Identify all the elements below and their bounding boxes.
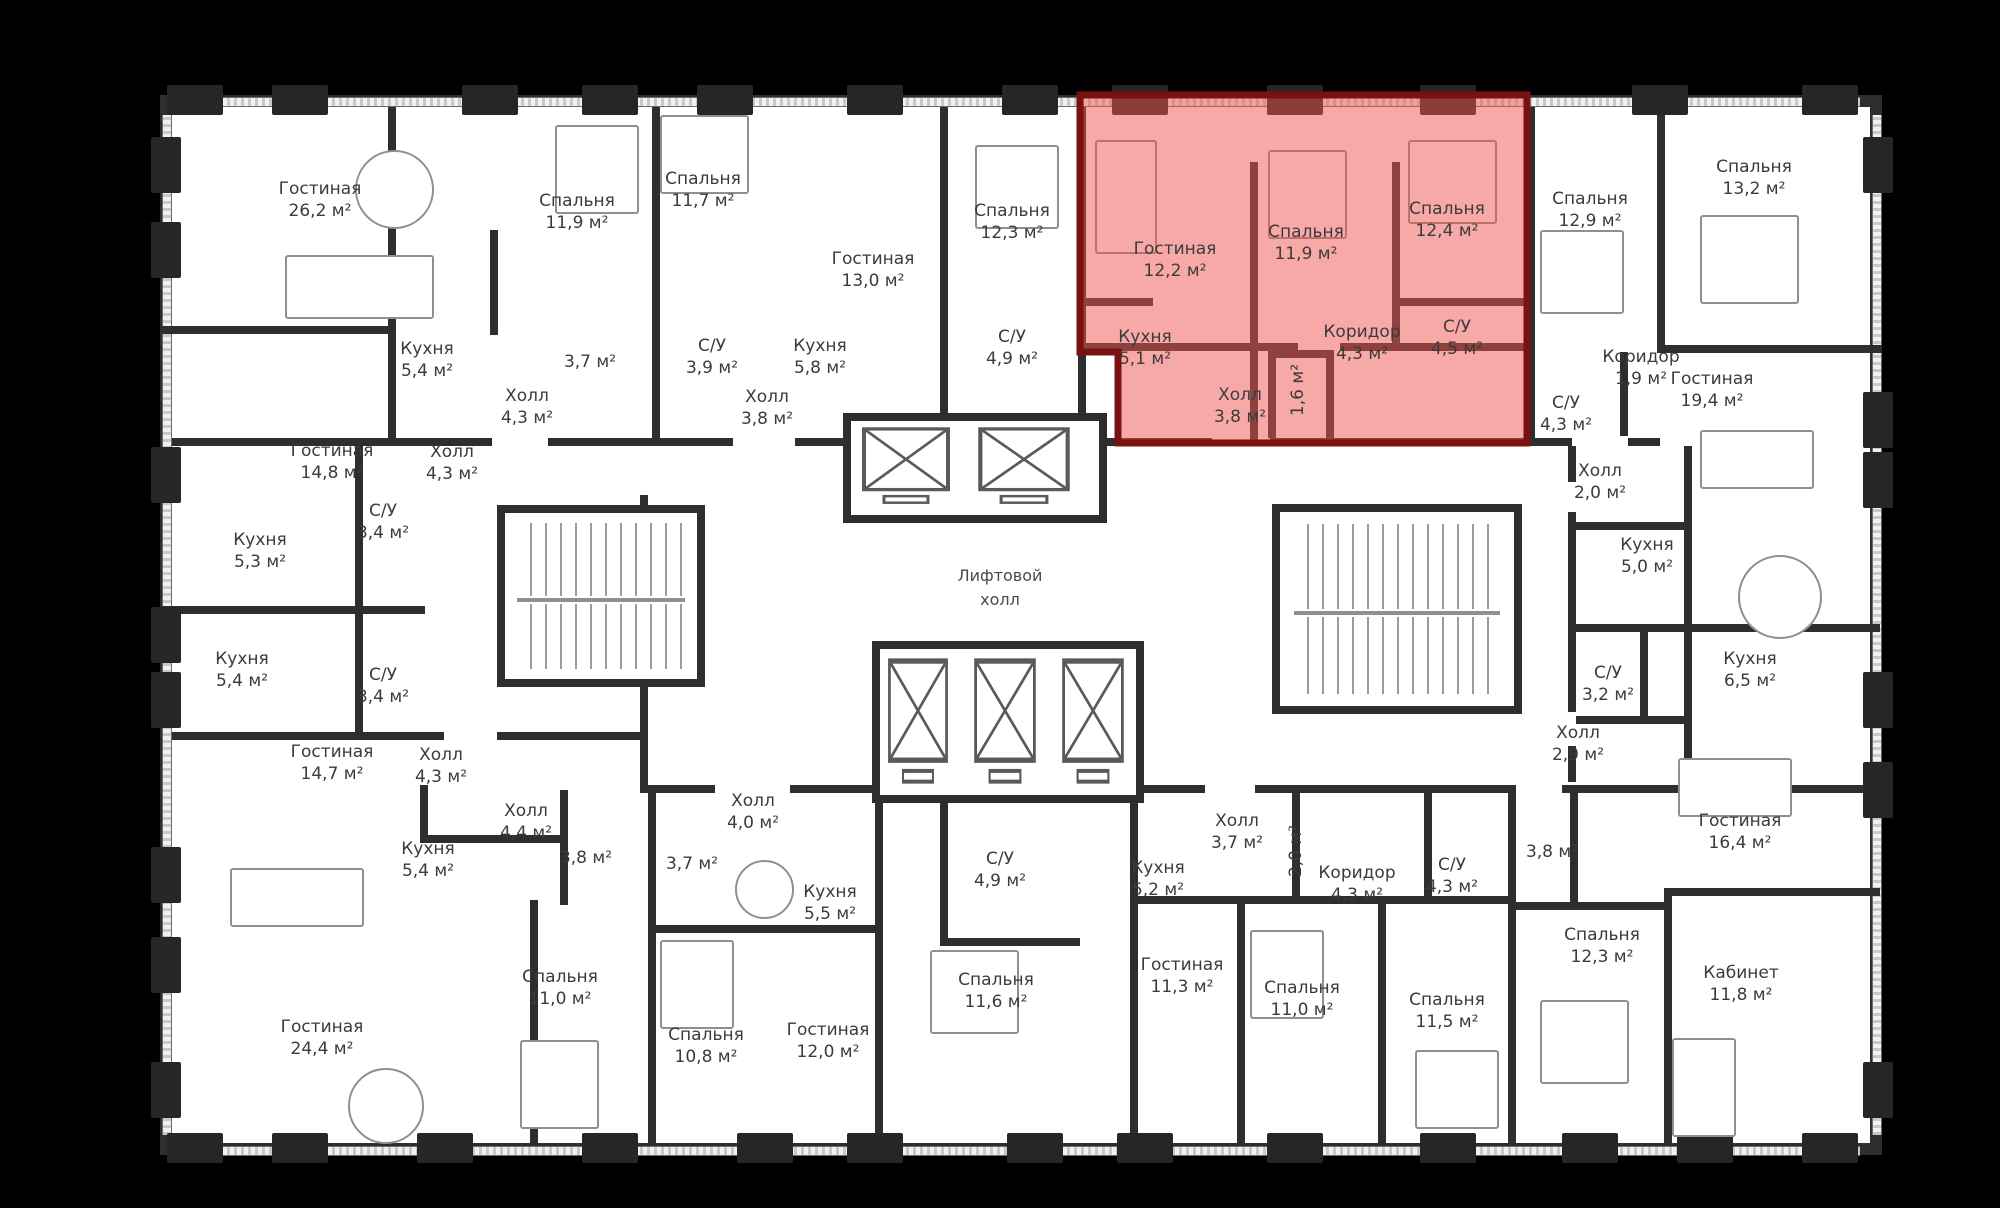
room-label: Спальня11,0 м² — [522, 966, 598, 1010]
furniture — [660, 940, 734, 1029]
interior-wall — [1684, 446, 1692, 624]
room-label: С/У4,3 м² — [1426, 854, 1478, 898]
interior-wall — [1268, 350, 1276, 438]
facade-column — [1863, 672, 1893, 728]
interior-wall — [1640, 632, 1648, 724]
facade-column — [847, 1133, 903, 1163]
room-label: Гостиная26,2 м² — [279, 178, 362, 222]
room-label: Спальня11,6 м² — [958, 969, 1034, 1013]
facade-column — [167, 85, 223, 115]
facade-column — [1002, 85, 1058, 115]
room-label: Холл3,8 м² — [741, 386, 793, 430]
interior-wall — [160, 606, 425, 614]
room-label: Спальня11,7 м² — [665, 168, 741, 212]
interior-wall — [1628, 438, 1660, 446]
facade-column — [1677, 1133, 1733, 1163]
elevator-hall-label: Лифтовой холл — [958, 564, 1043, 612]
furniture — [1700, 430, 1814, 489]
room-label-highlighted: Спальня11,9 м² — [1268, 221, 1344, 265]
furniture-table — [348, 1068, 424, 1144]
interior-wall — [940, 803, 948, 943]
interior-wall — [648, 785, 656, 1143]
facade-column — [1863, 452, 1893, 508]
interior-wall — [388, 326, 396, 444]
room-label: С/У3,4 м² — [357, 500, 409, 544]
interior-wall — [1508, 902, 1664, 910]
facade-column — [582, 1133, 638, 1163]
interior-wall — [790, 785, 874, 793]
interior-wall — [548, 438, 733, 446]
interior-wall — [940, 938, 1080, 946]
room-label: Спальня12,3 м² — [974, 200, 1050, 244]
interior-wall — [490, 230, 498, 335]
room-label: Гостиная11,3 м² — [1141, 954, 1224, 998]
room-label: С/У4,9 м² — [986, 326, 1038, 370]
room-label: Коридор1,9 м² — [1602, 346, 1679, 390]
room-label: С/У4,3 м² — [1540, 392, 1592, 436]
room-label: Кухня5,2 м² — [1131, 857, 1185, 901]
room-label: 3,7 м² — [564, 351, 616, 373]
room-label: Спальня10,8 м² — [668, 1024, 744, 1068]
room-label-highlighted: Холл3,8 м² — [1214, 384, 1266, 428]
room-label: Гостиная13,0 м² — [832, 248, 915, 292]
room-label: Кухня5,5 м² — [803, 881, 857, 925]
facade-column — [417, 1133, 473, 1163]
facade-column — [1802, 1133, 1858, 1163]
furniture — [1700, 215, 1799, 304]
interior-wall — [1237, 904, 1245, 1143]
interior-wall — [1078, 298, 1153, 306]
room-label-highlighted: Гостиная12,2 м² — [1134, 238, 1217, 282]
furniture — [1672, 1038, 1736, 1137]
interior-wall — [940, 107, 948, 444]
room-label: 2,0 м² — [1285, 825, 1307, 877]
elevator-cab-icon — [884, 653, 952, 787]
furniture — [230, 868, 364, 927]
facade-column — [151, 847, 181, 903]
interior-wall — [1107, 438, 1212, 446]
room-label: Спальня11,9 м² — [539, 190, 615, 234]
facade-column — [151, 672, 181, 728]
stairs-right-treads — [1294, 524, 1500, 694]
room-label: Спальня12,9 м² — [1552, 188, 1628, 232]
facade-column — [582, 85, 638, 115]
interior-wall — [1392, 298, 1532, 306]
room-label: Гостиная16,4 м² — [1699, 810, 1782, 854]
room-label: Кухня5,3 м² — [233, 529, 287, 573]
room-label: Холл4,3 м² — [501, 385, 553, 429]
room-label: С/У3,9 м² — [686, 335, 738, 379]
interior-wall — [795, 438, 845, 446]
interior-wall — [1292, 785, 1508, 793]
elevator-cab-icon — [972, 424, 1076, 506]
elevator-cab-icon — [856, 424, 956, 506]
stairs-left-treads — [517, 523, 685, 669]
room-label: Холл4,4 м² — [500, 800, 552, 844]
floor-plan-screenshot: Лифтовой холл Гостиная26,2 м²Кухня5,4 м²… — [0, 0, 2000, 1208]
facade-column — [151, 447, 181, 503]
interior-wall — [1568, 512, 1576, 712]
interior-wall — [1576, 522, 1684, 530]
room-label: Коридор4,3 м² — [1318, 862, 1395, 906]
interior-wall — [1130, 785, 1138, 1143]
stairs-right-landing — [1294, 609, 1500, 617]
elevator-cab-icon — [970, 653, 1040, 787]
facade-column — [151, 937, 181, 993]
room-label-highlighted: Коридор4,3 м² — [1323, 321, 1400, 365]
room-label: 3,8 м² — [560, 847, 612, 869]
room-label-highlighted: Спальня12,4 м² — [1409, 198, 1485, 242]
furniture — [1415, 1050, 1499, 1129]
room-label: Холл4,3 м² — [415, 744, 467, 788]
room-label: Холл2,0 м² — [1574, 460, 1626, 504]
interior-wall — [648, 925, 878, 933]
room-label: Кухня5,4 м² — [401, 838, 455, 882]
room-label-highlighted: С/У4,5 м² — [1431, 316, 1483, 360]
interior-wall — [1576, 624, 1880, 632]
room-label: Холл3,7 м² — [1211, 810, 1263, 854]
facade-column — [847, 85, 903, 115]
room-label: Спальня13,2 м² — [1716, 156, 1792, 200]
room-label: Гостиная14,7 м² — [291, 741, 374, 785]
facade-column — [1863, 392, 1893, 448]
facade-column — [272, 85, 328, 115]
room-label: С/У3,4 м² — [357, 664, 409, 708]
furniture — [285, 255, 434, 319]
room-label: Гостиная12,0 м² — [787, 1019, 870, 1063]
facade-column — [1562, 1133, 1618, 1163]
interior-wall — [1657, 107, 1665, 352]
facade-column — [462, 85, 518, 115]
facade-column — [167, 1133, 223, 1163]
room-label-highlighted: Кухня5,1 м² — [1118, 326, 1172, 370]
facade-column — [1632, 85, 1688, 115]
room-label: С/У3,2 м² — [1582, 662, 1634, 706]
furniture — [520, 1040, 599, 1129]
room-label: Спальня12,3 м² — [1564, 924, 1640, 968]
facade-column — [1802, 85, 1858, 115]
furniture — [1540, 230, 1624, 314]
facade-column — [1267, 85, 1323, 115]
room-label: Гостиная24,4 м² — [281, 1016, 364, 1060]
room-label: С/У4,9 м² — [974, 848, 1026, 892]
room-label-highlighted: 1,6 м² — [1287, 364, 1309, 416]
interior-wall — [1378, 904, 1386, 1143]
facade-column — [697, 85, 753, 115]
facade-column — [1117, 1133, 1173, 1163]
facade-column — [1420, 85, 1476, 115]
room-label: Кухня5,0 м² — [1620, 534, 1674, 578]
stairwell-left — [497, 505, 705, 687]
furniture — [1095, 140, 1157, 254]
interior-wall — [875, 803, 883, 1143]
furniture-table — [735, 860, 794, 919]
interior-wall — [1270, 438, 1572, 446]
interior-wall — [1255, 785, 1292, 793]
interior-wall — [1078, 107, 1086, 444]
room-label: Спальня11,0 м² — [1264, 977, 1340, 1021]
room-label: Кухня5,8 м² — [793, 335, 847, 379]
furniture-table — [355, 150, 434, 229]
interior-wall — [1144, 785, 1205, 793]
interior-wall — [1664, 888, 1880, 896]
facade-column — [737, 1133, 793, 1163]
facade-column — [1007, 1133, 1063, 1163]
interior-wall — [1527, 107, 1535, 444]
facade-column — [1863, 762, 1893, 818]
room-label: Гостиная19,4 м² — [1671, 368, 1754, 412]
furniture-table — [1738, 555, 1822, 639]
furniture — [1540, 1000, 1629, 1084]
interior-wall — [1664, 888, 1672, 1143]
room-label: Холл4,0 м² — [727, 790, 779, 834]
facade-column — [151, 137, 181, 193]
room-label: Гостиная14,8 м² — [291, 440, 374, 484]
room-label: Кухня5,4 м² — [400, 338, 454, 382]
interior-wall — [1657, 345, 1882, 353]
room-label: 3,8 м² — [1526, 841, 1578, 863]
facade-column — [272, 1133, 328, 1163]
facade-column — [1420, 1133, 1476, 1163]
room-label: Кухня6,5 м² — [1723, 648, 1777, 692]
room-label: Спальня11,5 м² — [1409, 989, 1485, 1033]
facade-column — [1863, 137, 1893, 193]
facade-column — [151, 607, 181, 663]
room-label: Кабинет11,8 м² — [1703, 962, 1779, 1006]
interior-wall — [1508, 785, 1516, 1143]
room-label: Холл2,9 м² — [1552, 722, 1604, 766]
facade-column — [1267, 1133, 1323, 1163]
facade-column — [1112, 85, 1168, 115]
room-label: Холл4,3 м² — [426, 441, 478, 485]
facade-column — [151, 1062, 181, 1118]
room-label: 3,7 м² — [666, 853, 718, 875]
interior-wall — [172, 732, 444, 740]
interior-wall — [497, 732, 645, 740]
interior-wall — [652, 107, 660, 444]
stairwell-right — [1272, 504, 1522, 714]
room-label: Кухня5,4 м² — [215, 648, 269, 692]
elevator-cab-icon — [1058, 653, 1128, 787]
stairs-left-landing — [517, 596, 685, 604]
interior-wall — [160, 326, 396, 334]
furniture — [1678, 758, 1792, 817]
facade-column — [1863, 1062, 1893, 1118]
facade-column — [151, 222, 181, 278]
